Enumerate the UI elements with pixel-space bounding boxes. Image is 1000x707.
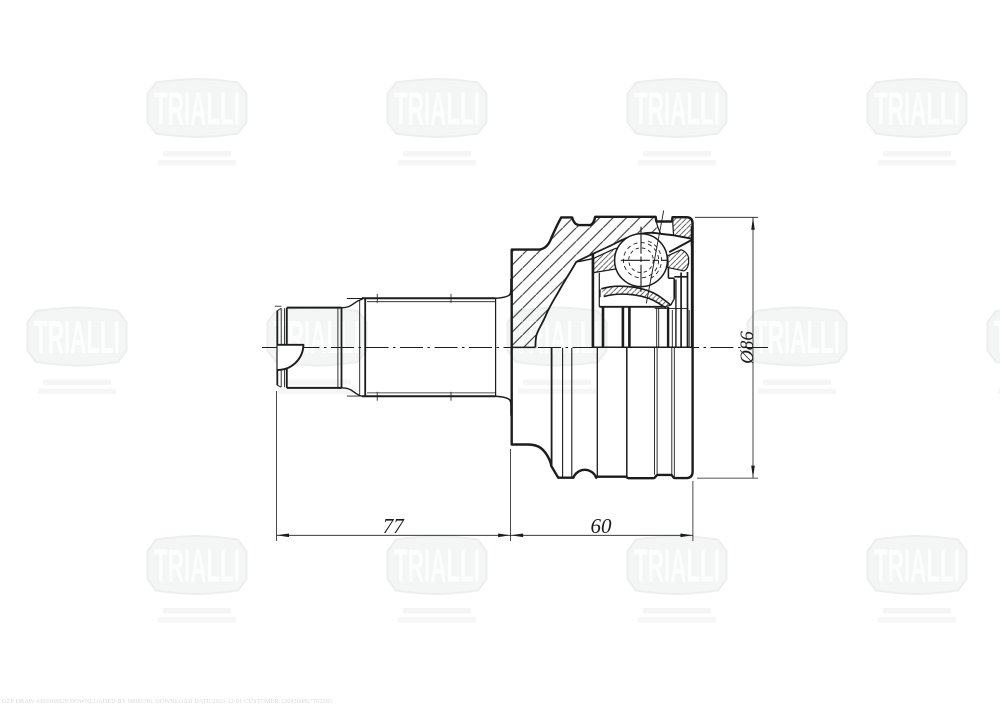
- svg-text:77: 77: [383, 514, 406, 538]
- svg-text:GZP DRAW 4309108829 DOWNLOADED: GZP DRAW 4309108829 DOWNLOADED BY 989867…: [2, 698, 332, 705]
- svg-text:Ø86: Ø86: [737, 331, 758, 365]
- svg-text:60: 60: [591, 514, 613, 538]
